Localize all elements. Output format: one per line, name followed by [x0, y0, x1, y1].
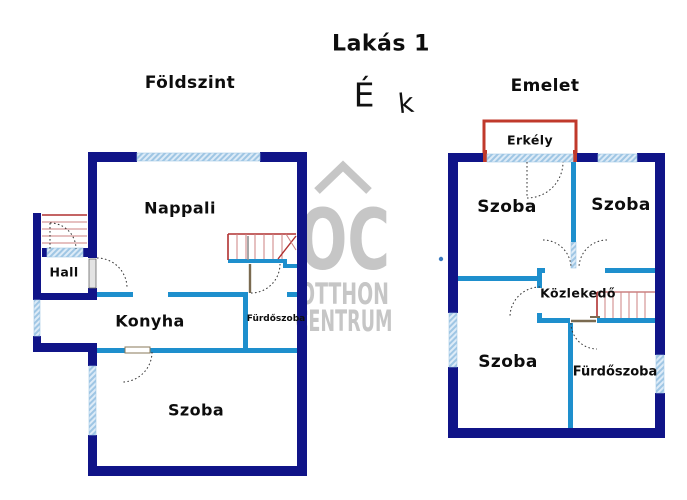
window	[598, 154, 637, 162]
wall	[577, 153, 598, 162]
room-label-szoba-top-left: Szoba	[477, 197, 536, 217]
wall	[88, 152, 97, 258]
room-label-nappali: Nappali	[144, 199, 216, 218]
wall	[637, 153, 665, 162]
door-arc	[527, 162, 563, 198]
door-arc	[510, 287, 540, 317]
room-label-szoba-top-right: Szoba	[591, 195, 650, 215]
window	[34, 300, 40, 336]
upper-floor-title: Emelet	[511, 76, 580, 96]
wall	[33, 343, 97, 352]
ground-floor-title: Földszint	[145, 73, 235, 93]
floor-plan-page: OC OTTHON CENTRUM	[0, 0, 687, 500]
watermark-logo: OC OTTHON CENTRUM	[296, 166, 393, 338]
partition	[168, 292, 243, 297]
partition	[597, 318, 655, 323]
door-leaf	[89, 259, 96, 288]
partition	[458, 276, 540, 281]
door-arc	[579, 240, 607, 268]
wall	[33, 213, 41, 300]
balcony-wall-tick	[573, 150, 577, 162]
wall	[448, 428, 665, 438]
window	[137, 153, 260, 161]
wall	[448, 367, 458, 437]
wall	[88, 435, 97, 466]
upper-floor-plan	[439, 121, 665, 438]
room-label-furdoszoba-upper: Fürdőszoba	[573, 365, 657, 380]
ground-stairs-right	[228, 234, 296, 260]
wall	[448, 162, 458, 313]
watermark-line2: CENTRUM	[296, 304, 393, 338]
window	[47, 248, 83, 257]
partition	[537, 318, 570, 323]
door-arc	[571, 323, 597, 349]
ground-partitions	[97, 259, 297, 353]
watermark-logo-text: OC	[298, 191, 390, 289]
room-label-konyha: Konyha	[115, 312, 185, 331]
glazed-panel	[571, 242, 576, 268]
compass-k-label: k	[397, 88, 416, 120]
partition	[228, 259, 283, 263]
window	[89, 366, 96, 435]
wall	[655, 162, 665, 355]
stray-dot	[439, 257, 443, 261]
door-sill	[125, 347, 150, 353]
partition	[97, 348, 125, 353]
watermark-roof-icon	[317, 166, 369, 191]
room-label-kozlekedo: Közlekedő	[540, 286, 616, 301]
partition	[605, 268, 655, 273]
partition	[97, 292, 133, 297]
ground-stairs-left	[42, 215, 87, 243]
partition	[571, 162, 576, 242]
window	[487, 154, 573, 162]
floor-plan-canvas: OC OTTHON CENTRUM	[0, 0, 687, 500]
partition	[150, 348, 297, 353]
page-title: Lakás 1	[332, 32, 430, 57]
door-arc	[251, 264, 280, 293]
wall	[42, 248, 47, 257]
wall	[88, 352, 97, 366]
compass-north-label: É	[354, 76, 375, 115]
partition	[287, 264, 297, 268]
door-arc	[97, 258, 127, 288]
wall	[33, 336, 41, 343]
balcony-wall-tick	[483, 150, 487, 162]
wall	[448, 153, 487, 162]
window	[449, 313, 457, 367]
room-label-szoba-bottom: Szoba	[478, 352, 537, 372]
door-arc	[122, 352, 152, 382]
wall	[88, 466, 307, 476]
room-label-furdoszoba-ground: Fürdőszoba	[247, 314, 305, 324]
wall	[83, 248, 89, 257]
partition	[287, 292, 297, 297]
room-label-szoba-ground: Szoba	[168, 401, 224, 420]
partition	[283, 259, 287, 268]
room-label-hall: Hall	[49, 265, 78, 280]
wall	[33, 293, 97, 300]
room-label-erkely: Erkély	[507, 133, 553, 148]
door-arc	[543, 240, 571, 268]
